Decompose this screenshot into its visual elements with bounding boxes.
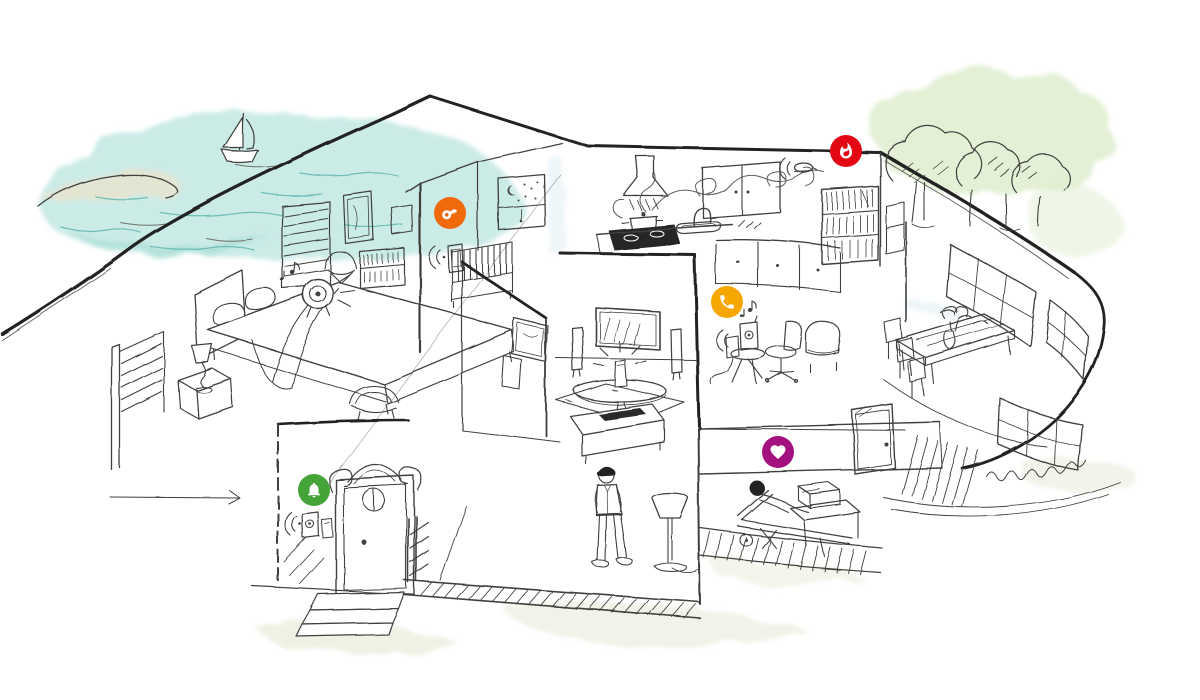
front-left-wall — [110, 332, 240, 504]
ground-wash-center — [500, 602, 810, 646]
ground-line-arrow — [110, 491, 240, 504]
bed — [194, 262, 514, 414]
armchair — [806, 322, 840, 372]
floor-lamp — [652, 493, 698, 573]
wifi-waves — [285, 512, 296, 536]
phone-hotspot[interactable] — [711, 286, 743, 318]
heart-icon — [769, 443, 787, 461]
living-room — [556, 253, 699, 464]
bell-icon — [305, 481, 323, 499]
lounger-person — [738, 481, 852, 557]
flame-icon — [837, 142, 855, 160]
house-sketch — [0, 0, 1200, 700]
dining-room — [884, 202, 1014, 398]
doorbell-hotspot[interactable] — [298, 474, 330, 506]
trees-wash-right — [1032, 182, 1124, 255]
tower-speakers — [572, 327, 682, 380]
interior-hint-kitchen — [548, 159, 570, 255]
smart-home-illustration — [0, 0, 1200, 700]
standing-man — [592, 467, 632, 567]
kitchen — [596, 152, 905, 430]
front-wall-cut — [398, 428, 700, 618]
side-table — [790, 500, 860, 546]
fire-hotspot[interactable] — [830, 135, 862, 167]
picture-frame-large — [512, 318, 548, 362]
range-hood — [624, 156, 668, 211]
nightstand — [178, 344, 232, 418]
terrace-wall — [700, 404, 942, 474]
kitchen-bookshelf — [822, 186, 878, 264]
tv — [596, 308, 660, 350]
steam-swirls — [614, 168, 824, 218]
access-hotspot[interactable] — [434, 197, 466, 229]
curved-window-upper-b — [1046, 300, 1088, 380]
health-hotspot[interactable] — [762, 436, 794, 468]
key-icon — [441, 204, 459, 222]
sunroom-hatch — [902, 436, 978, 507]
bench — [570, 404, 664, 464]
office-chair — [766, 322, 803, 382]
narrow-window — [886, 202, 904, 254]
terrace-door — [852, 404, 895, 474]
wifi-waves — [780, 158, 790, 179]
video-doorbell-device — [285, 512, 333, 538]
phone-icon — [718, 293, 736, 311]
steps — [296, 592, 404, 636]
trees-wash — [871, 68, 1114, 195]
